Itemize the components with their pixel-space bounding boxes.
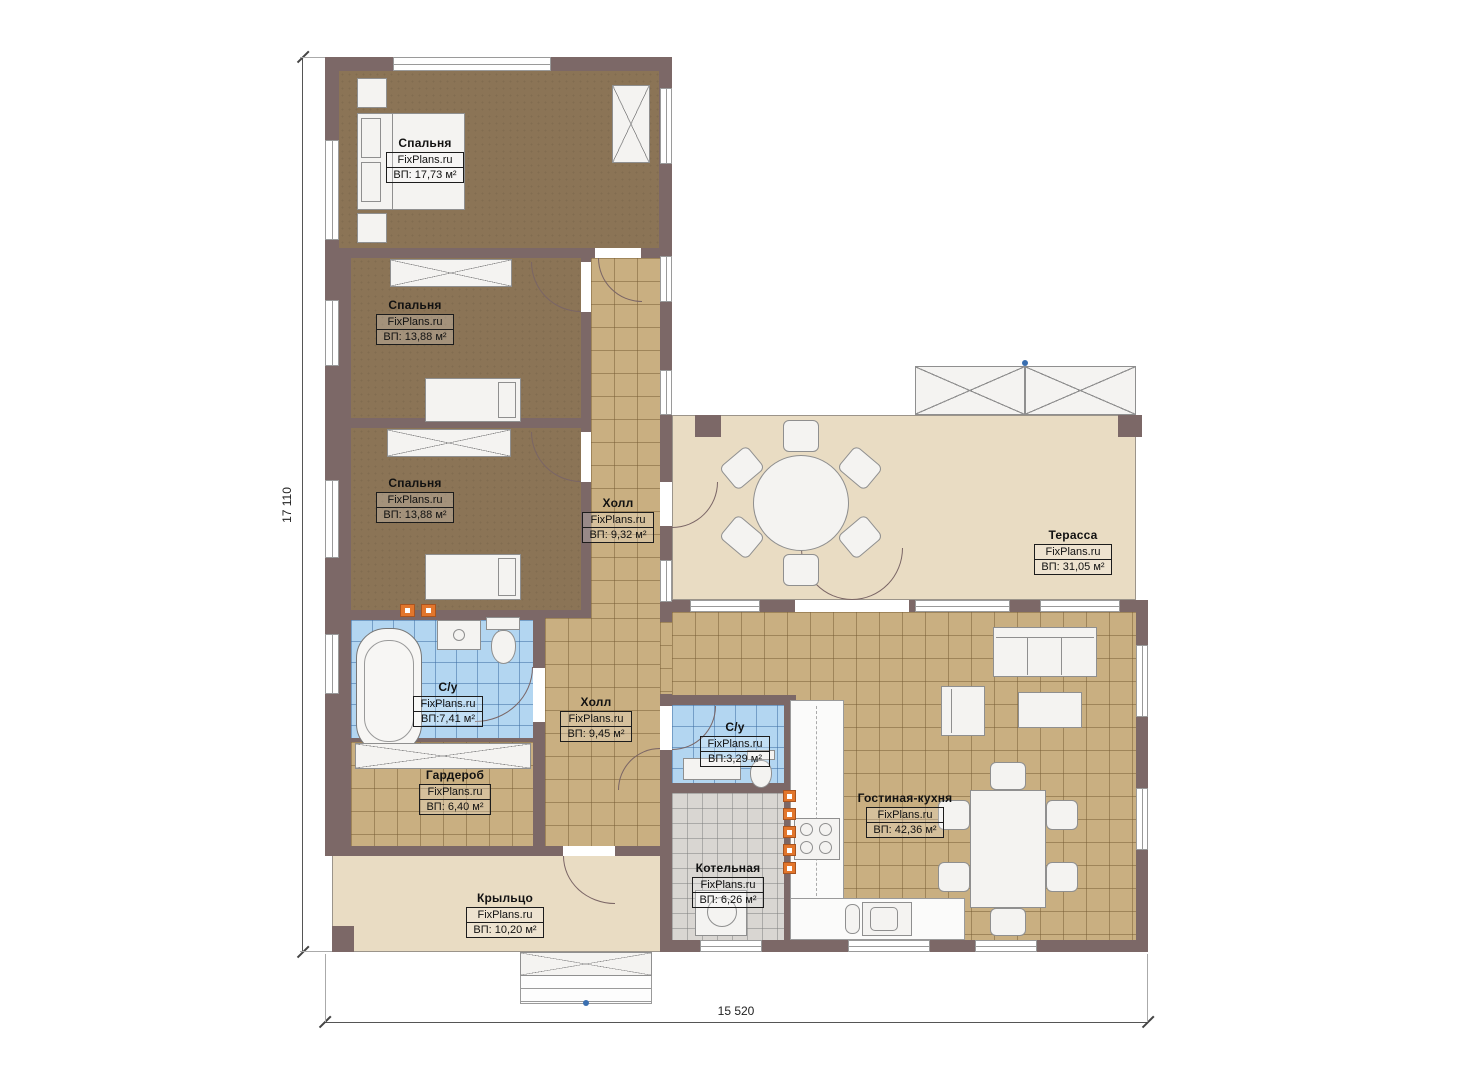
extension-line: [325, 954, 326, 1022]
porch-steps-chevron: [520, 952, 652, 976]
chair: [1046, 862, 1078, 892]
room-name: Терасса: [1018, 528, 1128, 542]
room-area: ВП:7,41 м²: [414, 712, 481, 726]
radiator: [783, 862, 796, 874]
floor-plan-canvas: ✳ Спальня FixPlans.ru ВП: 17,73 м² Спаль…: [0, 0, 1474, 1080]
extension-line: [1147, 954, 1148, 1022]
dimension-line-horizontal: [325, 1022, 1148, 1023]
armchair-back-line: [951, 689, 952, 733]
extension-line: [300, 951, 332, 952]
terrace-stairs: [915, 366, 1025, 415]
cooktop: [794, 818, 840, 860]
room-name: Крыльцо: [450, 891, 560, 905]
brand-text: FixPlans.ru: [377, 493, 452, 508]
french-door-gap-terrace: [795, 600, 909, 612]
brand-text: FixPlans.ru: [583, 513, 652, 528]
dimension-line-vertical: [302, 57, 303, 952]
hall-living-opening: [660, 622, 672, 694]
room-label-living-kitchen: Гостиная-кухня FixPlans.ru ВП: 42,36 м²: [840, 791, 970, 838]
door-gap-bedroom-2: [581, 262, 591, 312]
dimension-height-label: 17 110: [280, 470, 294, 540]
terrace-pillar-right: [1118, 415, 1142, 437]
room-name: Спальня: [370, 136, 480, 150]
brand-text: FixPlans.ru: [561, 712, 630, 727]
room-area: ВП: 17,73 м²: [387, 168, 462, 182]
room-name: Котельная: [673, 861, 783, 875]
room-name: Гардероб: [400, 768, 510, 782]
room-label-hall-lower: Холл FixPlans.ru ВП: 9,45 м²: [541, 695, 651, 742]
burner: [800, 841, 813, 854]
room-name: Холл: [563, 496, 673, 510]
burner: [819, 823, 832, 836]
room-area: ВП: 6,40 м²: [420, 800, 489, 814]
door-gap-bedroom-1: [595, 248, 641, 258]
wardrobe-cabinet: [355, 743, 531, 769]
terrace-pillar-left: [695, 415, 721, 437]
door-gap-bathroom-2: [660, 706, 672, 750]
sofa-divider: [1027, 637, 1028, 675]
wardrobe-cabinet: [390, 259, 512, 287]
terrace-stairs: [1025, 366, 1136, 415]
chair: [783, 554, 819, 586]
kitchen-counter-vertical: [790, 700, 844, 905]
room-area: ВП: 9,45 м²: [561, 727, 630, 741]
radiator: [783, 790, 796, 802]
room-area: ВП:3,29 м²: [701, 752, 768, 766]
room-area: ВП: 10,20 м²: [467, 923, 542, 937]
room-label-bedroom-3: Спальня FixPlans.ru ВП: 13,88 м²: [360, 476, 470, 523]
window: [393, 57, 551, 71]
brand-text: FixPlans.ru: [693, 878, 762, 893]
toilet-bowl: [491, 630, 516, 664]
porch-steps-treads: [521, 976, 651, 1003]
sofa: [993, 627, 1097, 677]
room-area: ВП: 9,32 м²: [583, 528, 652, 542]
room-name: С/у: [680, 720, 790, 734]
room-name: С/у: [393, 680, 503, 694]
window: [325, 634, 339, 694]
window: [1136, 788, 1148, 850]
window: [660, 370, 672, 415]
brand-text: FixPlans.ru: [377, 315, 452, 330]
burner: [800, 823, 813, 836]
dimension-width-label: 15 520: [686, 1004, 786, 1018]
kitchen-counter-dash: [816, 706, 817, 896]
radiator: [783, 844, 796, 856]
nightstand: [357, 78, 387, 108]
room-name: Холл: [541, 695, 651, 709]
door-gap-bedroom-3: [581, 432, 591, 482]
radiator: [783, 826, 796, 838]
window: [660, 256, 672, 302]
dining-table: [970, 790, 1046, 908]
sofa-divider: [1061, 637, 1062, 675]
brand-text: FixPlans.ru: [420, 785, 489, 800]
coffee-table: [1018, 692, 1082, 728]
window: [660, 560, 672, 602]
extension-line: [300, 57, 325, 58]
room-name: Спальня: [360, 476, 470, 490]
sofa-back-line: [996, 637, 1094, 638]
room-area: ВП: 13,88 м²: [377, 508, 452, 522]
chair: [938, 862, 970, 892]
chair: [990, 908, 1026, 936]
burner: [819, 841, 832, 854]
armchair: [941, 686, 985, 736]
porch-corner-stub: [332, 926, 354, 952]
sink-side-bowl: [845, 904, 860, 934]
toilet-tank: [486, 617, 520, 630]
chair: [990, 762, 1026, 790]
room-name: Спальня: [360, 298, 470, 312]
window: [660, 88, 672, 164]
window: [1040, 600, 1120, 612]
brand-text: FixPlans.ru: [867, 808, 942, 823]
hall-upper-floor: [591, 258, 660, 618]
room-label-boiler-room: Котельная FixPlans.ru ВП: 6,26 м²: [673, 861, 783, 908]
door-gap-porch: [563, 846, 615, 856]
wardrobe-cabinet: [612, 85, 650, 163]
window: [975, 940, 1037, 952]
room-label-bedroom-2: Спальня FixPlans.ru ВП: 13,88 м²: [360, 298, 470, 345]
radiator: [783, 808, 796, 820]
chair: [783, 420, 819, 452]
terrace-stairs-marker: [1022, 360, 1028, 366]
pillow: [498, 558, 516, 596]
room-label-porch: Крыльцо FixPlans.ru ВП: 10,20 м²: [450, 891, 560, 938]
brand-text: FixPlans.ru: [387, 153, 462, 168]
wardrobe-cabinet: [387, 429, 511, 457]
room-area: ВП: 31,05 м²: [1035, 560, 1110, 574]
room-area: ВП: 42,36 м²: [867, 823, 942, 837]
window: [848, 940, 930, 952]
room-area: ВП: 13,88 м²: [377, 330, 452, 344]
window: [1136, 645, 1148, 717]
room-label-wardrobe: Гардероб FixPlans.ru ВП: 6,40 м²: [400, 768, 510, 815]
round-dining-table: [753, 455, 849, 551]
window: [915, 600, 1010, 612]
pillow: [498, 382, 516, 418]
room-label-terrace: Терасса FixPlans.ru ВП: 31,05 м²: [1018, 528, 1128, 575]
brand-text: FixPlans.ru: [701, 737, 768, 752]
room-area: ВП: 6,26 м²: [693, 893, 762, 907]
brand-text: FixPlans.ru: [414, 697, 481, 712]
room-label-bathroom-1: С/у FixPlans.ru ВП:7,41 м²: [393, 680, 503, 727]
chair: [1046, 800, 1078, 830]
window: [325, 140, 339, 240]
brand-text: FixPlans.ru: [467, 908, 542, 923]
window: [325, 300, 339, 366]
kitchen-sink-bowl: [870, 907, 898, 931]
room-name: Гостиная-кухня: [840, 791, 970, 805]
window: [700, 940, 762, 952]
room-label-bedroom-1: Спальня FixPlans.ru ВП: 17,73 м²: [370, 136, 480, 183]
room-label-bathroom-2: С/у FixPlans.ru ВП:3,29 м²: [680, 720, 790, 767]
brand-text: FixPlans.ru: [1035, 545, 1110, 560]
radiator: [400, 604, 415, 617]
nightstand: [357, 213, 387, 243]
porch-steps-marker: [583, 1000, 589, 1006]
room-label-hall-upper: Холл FixPlans.ru ВП: 9,32 м²: [563, 496, 673, 543]
window: [690, 600, 760, 612]
washbasin-drain: [453, 629, 465, 641]
window: [325, 480, 339, 558]
radiator: [421, 604, 436, 617]
